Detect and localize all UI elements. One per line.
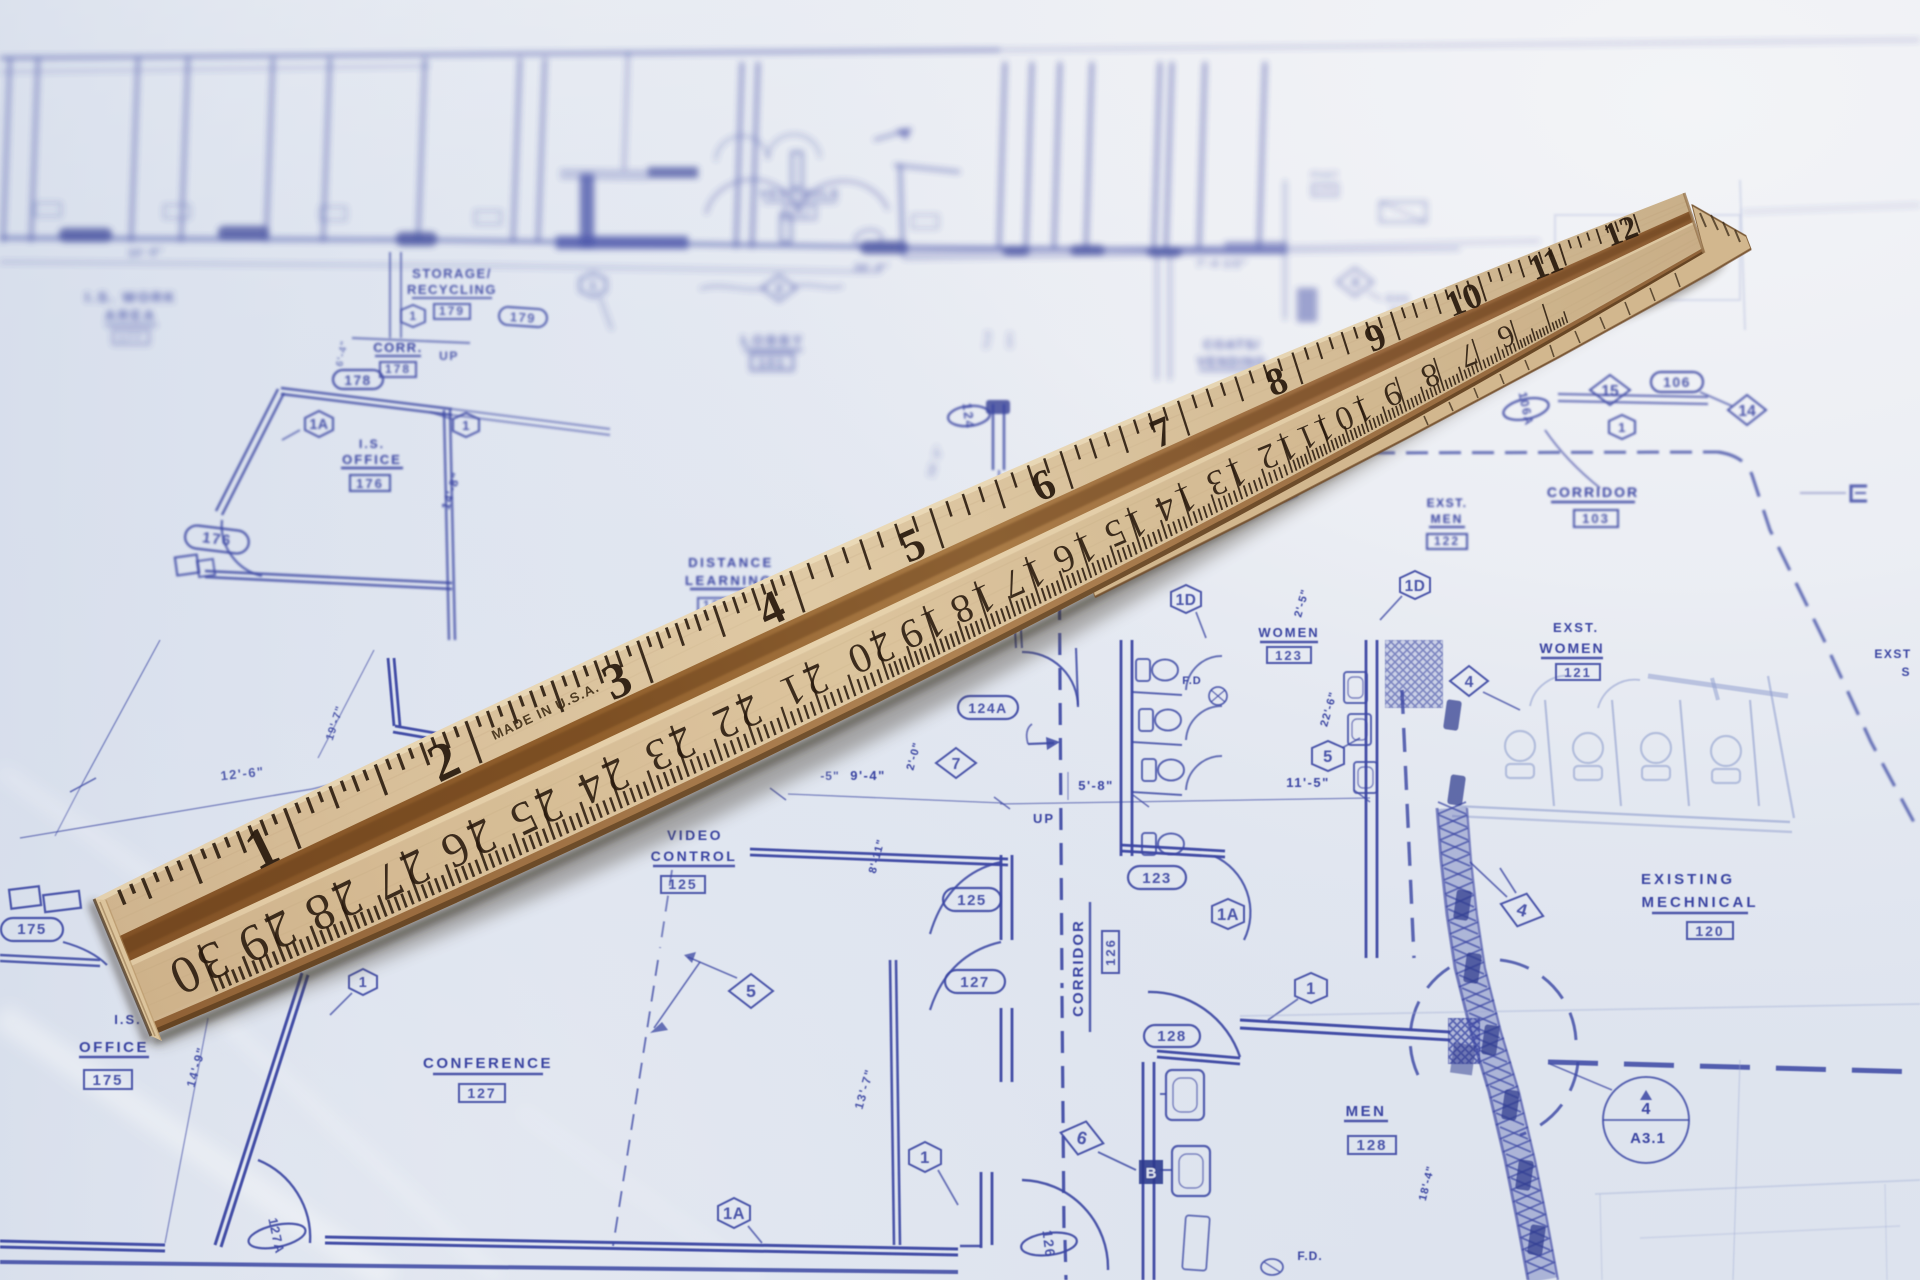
svg-text:105: 105 xyxy=(1314,185,1335,195)
svg-text:1: 1 xyxy=(359,975,367,991)
svg-text:123: 123 xyxy=(1275,648,1303,663)
svg-text:RECYCLING: RECYCLING xyxy=(407,282,497,297)
svg-text:4: 4 xyxy=(1642,1101,1651,1118)
svg-text:177: 177 xyxy=(119,332,143,344)
svg-text:36'-8": 36'-8" xyxy=(854,262,890,274)
svg-text:178: 178 xyxy=(344,373,371,388)
svg-text:1A: 1A xyxy=(1217,906,1239,924)
svg-text:1A: 1A xyxy=(309,417,328,433)
svg-text:1D: 1D xyxy=(1405,578,1426,595)
svg-text:175: 175 xyxy=(17,921,47,938)
svg-text:5'-8": 5'-8" xyxy=(1078,778,1114,793)
svg-text:9'-4": 9'-4" xyxy=(850,768,886,783)
svg-text:I.S. WORK: I.S. WORK xyxy=(85,289,177,305)
svg-text:CPT: CPT xyxy=(1005,331,1015,349)
svg-text:CORR.: CORR. xyxy=(373,340,422,355)
svg-text:B: B xyxy=(1146,1165,1157,1182)
svg-text:7'-4 1/2": 7'-4 1/2" xyxy=(1196,258,1247,270)
svg-text:VESTIBULE: VESTIBULE xyxy=(760,187,841,201)
svg-text:LOBBY: LOBBY xyxy=(741,332,805,348)
svg-text:MEN: MEN xyxy=(1346,1103,1387,1120)
svg-text:AREA: AREA xyxy=(105,307,157,323)
svg-text:UP: UP xyxy=(439,349,459,363)
svg-text:DISTANCE: DISTANCE xyxy=(688,555,773,570)
svg-text:1: 1 xyxy=(920,1149,930,1167)
svg-text:122: 122 xyxy=(1434,534,1460,548)
svg-text:1D: 1D xyxy=(1176,592,1197,609)
svg-text:106: 106 xyxy=(1663,374,1691,390)
svg-text:120: 120 xyxy=(1695,923,1724,939)
svg-text:CORRIDOR: CORRIDOR xyxy=(1070,919,1087,1017)
svg-text:CONFERENCE: CONFERENCE xyxy=(423,1055,553,1072)
svg-text:175: 175 xyxy=(92,1072,123,1089)
svg-text:176: 176 xyxy=(356,476,384,491)
svg-text:1: 1 xyxy=(1306,980,1316,998)
svg-text:MECHNICAL: MECHNICAL xyxy=(1642,894,1759,911)
svg-text:EXST: EXST xyxy=(1874,647,1911,661)
svg-text:WOMEN: WOMEN xyxy=(1258,625,1319,640)
svg-text:11'-5": 11'-5" xyxy=(1286,775,1330,790)
svg-text:OFFICE: OFFICE xyxy=(342,452,402,467)
svg-text:TILE: TILE xyxy=(982,330,993,350)
svg-text:4: 4 xyxy=(1351,275,1360,291)
svg-text:MEN: MEN xyxy=(1431,512,1464,526)
svg-text:14: 14 xyxy=(1738,403,1756,420)
svg-text:5: 5 xyxy=(1323,748,1333,766)
svg-text:179: 179 xyxy=(509,309,536,326)
svg-text:UP: UP xyxy=(1033,811,1055,826)
svg-text:103: 103 xyxy=(1582,511,1610,526)
svg-text:1: 1 xyxy=(409,309,416,323)
svg-text:EXISTING: EXISTING xyxy=(1641,871,1735,888)
svg-text:EXST.: EXST. xyxy=(1553,620,1599,635)
svg-text:178: 178 xyxy=(385,362,411,376)
svg-text:5: 5 xyxy=(746,981,756,1001)
svg-text:CORRIDOR: CORRIDOR xyxy=(1547,484,1639,500)
svg-text:102: 102 xyxy=(789,209,812,220)
svg-text:124A: 124A xyxy=(968,700,1007,716)
svg-text:CONTROL: CONTROL xyxy=(651,848,738,864)
svg-text:1A: 1A xyxy=(723,1205,745,1223)
svg-text:125: 125 xyxy=(668,876,697,892)
svg-text:128: 128 xyxy=(1157,1028,1187,1045)
svg-text:F.D.: F.D. xyxy=(1297,1249,1322,1263)
svg-text:124: 124 xyxy=(960,402,978,430)
svg-text:STORAGE/: STORAGE/ xyxy=(412,266,492,281)
svg-text:2: 2 xyxy=(775,281,783,296)
svg-text:7: 7 xyxy=(952,756,961,773)
svg-text:128: 128 xyxy=(1356,1137,1387,1154)
svg-text:I.S.: I.S. xyxy=(359,437,385,451)
svg-text:-5": -5" xyxy=(820,769,839,783)
svg-text:WOMEN: WOMEN xyxy=(1539,640,1604,656)
svg-text:127: 127 xyxy=(467,1085,496,1101)
svg-text:1: 1 xyxy=(589,278,597,293)
svg-text:A3.1: A3.1 xyxy=(1630,1130,1666,1147)
svg-text:F.D: F.D xyxy=(1182,675,1202,687)
svg-text:179: 179 xyxy=(439,304,465,318)
svg-text:127: 127 xyxy=(960,974,990,991)
svg-text:4: 4 xyxy=(1465,674,1474,691)
svg-text:COATS/: COATS/ xyxy=(1203,337,1260,352)
svg-text:123: 123 xyxy=(1142,870,1172,887)
svg-text:30'-8": 30'-8" xyxy=(128,246,164,260)
svg-text:15: 15 xyxy=(1601,383,1619,400)
svg-text:126: 126 xyxy=(1039,1229,1058,1259)
svg-text:POST: POST xyxy=(1311,170,1340,180)
svg-text:1: 1 xyxy=(1618,420,1626,435)
svg-text:OFFICE: OFFICE xyxy=(79,1039,149,1056)
svg-text:125: 125 xyxy=(957,892,987,909)
svg-text:EXST.: EXST. xyxy=(1427,496,1468,510)
svg-text:101: 101 xyxy=(758,355,786,370)
svg-text:1: 1 xyxy=(462,418,470,433)
svg-text:S: S xyxy=(1901,665,1910,679)
svg-text:121: 121 xyxy=(1564,665,1592,680)
svg-text:176: 176 xyxy=(201,529,232,549)
svg-text:126: 126 xyxy=(1103,938,1118,966)
